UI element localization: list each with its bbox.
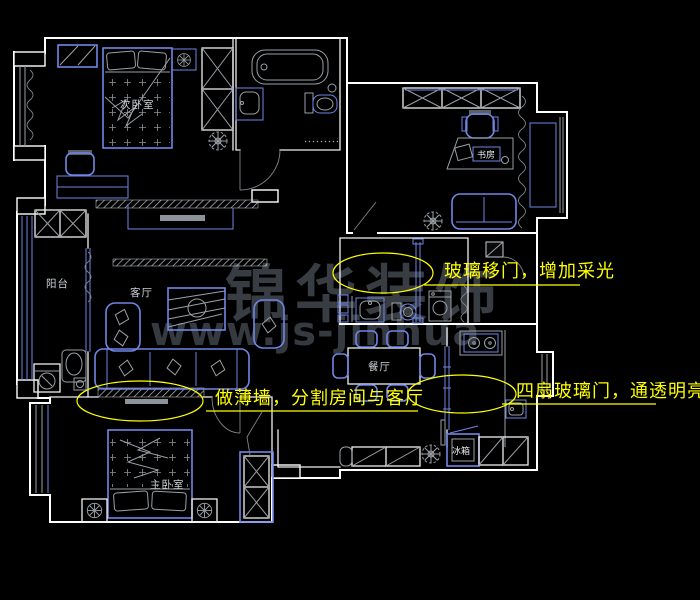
plant-icon	[422, 445, 440, 463]
annotation-text-thin-wall: 做薄墙，分割房间与客厅	[215, 388, 424, 409]
highlight-ellipse	[408, 375, 516, 413]
plant-icon	[424, 212, 442, 230]
study-bay-window	[519, 96, 564, 228]
toilet	[305, 93, 337, 113]
chair	[333, 354, 348, 378]
bathroom-door	[240, 150, 280, 190]
wardrobe	[240, 452, 273, 522]
cabinet	[58, 45, 97, 67]
nightstand	[192, 499, 217, 522]
fridge: 冰箱	[447, 426, 479, 466]
sofa	[95, 349, 249, 389]
partition-hatch-wall	[96, 200, 258, 208]
floor-drain-icon	[328, 84, 336, 92]
plant-icon	[209, 132, 227, 150]
study-door	[354, 202, 376, 230]
label-living-room: 客厅	[130, 286, 153, 299]
bed	[108, 430, 192, 518]
desk-chair	[462, 110, 498, 138]
room-bathroom-1	[236, 50, 337, 120]
chair	[420, 354, 435, 378]
bed	[103, 48, 172, 148]
label-fridge: 冰箱	[452, 445, 470, 457]
tv-unit	[125, 399, 168, 404]
tv-wall-hatch	[113, 259, 267, 266]
bathtub	[252, 50, 328, 84]
balcony-window	[22, 216, 32, 380]
label-master-bedroom: 主卧室	[150, 478, 185, 491]
annotation-text-four-glass-doors: 四扇玻璃门，通透明亮	[516, 381, 700, 402]
sink	[236, 88, 263, 120]
sofa	[452, 194, 516, 229]
annotation-four-glass-doors: 四扇玻璃门，通透明亮	[408, 375, 700, 413]
room-balcony: 阳台	[34, 210, 91, 392]
nightstand	[82, 499, 107, 522]
mop-basin	[62, 350, 86, 390]
label-dining-room: 餐厅	[368, 360, 391, 373]
closet	[403, 88, 520, 108]
room-secondary-bedroom: 次卧室	[57, 45, 233, 198]
kitchen-four-panel-glass-door	[443, 346, 451, 430]
bedroom-bay-window	[20, 66, 33, 146]
label-balcony: 阳台	[46, 277, 69, 290]
curtain-icon	[519, 96, 526, 228]
floor-plan-drawing: 锦华装饰 www.js-jinhua	[0, 0, 700, 600]
leader-line	[247, 412, 262, 455]
master-bay-window	[36, 405, 48, 493]
armchair	[106, 303, 140, 351]
threshold	[305, 138, 338, 144]
ironing-board	[441, 420, 445, 445]
label-secondary-bedroom: 次卧室	[120, 98, 155, 111]
nightstand	[172, 49, 196, 70]
watermark-website-text: www.js-jinhua	[150, 309, 480, 355]
wardrobe-column	[202, 48, 233, 150]
desk-chair	[66, 150, 94, 175]
annotation-text-glass-sliding-door: 玻璃移门，增加采光	[444, 261, 615, 282]
kitchen-sink	[506, 400, 526, 418]
label-study: 书房	[477, 149, 495, 161]
floor-plan-canvas: 锦华装饰 www.js-jinhua	[0, 0, 700, 600]
curtain-icon	[27, 70, 33, 140]
room-study: 书房	[403, 88, 520, 230]
